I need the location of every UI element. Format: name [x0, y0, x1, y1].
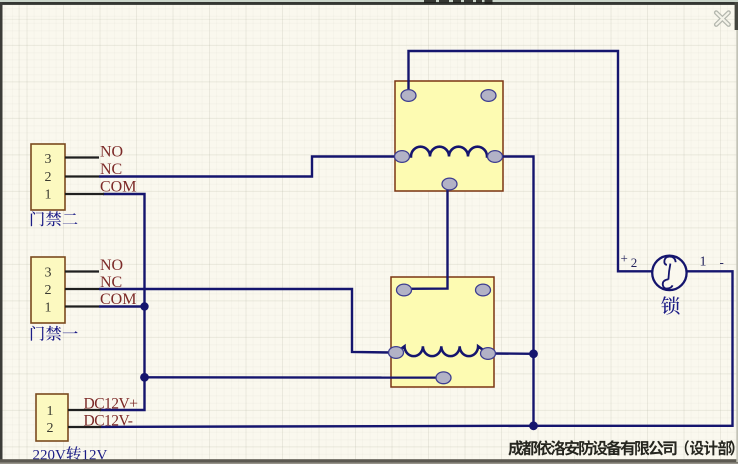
svg-text:NC: NC — [100, 161, 122, 178]
svg-text:DC12V+: DC12V+ — [84, 396, 138, 413]
svg-text:NO: NO — [100, 144, 123, 161]
svg-text:2: 2 — [45, 283, 52, 298]
svg-text:2: 2 — [631, 255, 638, 270]
svg-text:NC: NC — [100, 274, 122, 291]
svg-text:COM: COM — [100, 291, 136, 308]
svg-text:DC12V-: DC12V- — [84, 413, 133, 430]
svg-text:+: + — [621, 251, 628, 266]
svg-text:2: 2 — [45, 170, 52, 185]
svg-text:1: 1 — [45, 301, 52, 316]
svg-text:2: 2 — [47, 421, 54, 436]
svg-text:3: 3 — [45, 152, 52, 167]
svg-text:1: 1 — [45, 188, 52, 203]
svg-text:COM: COM — [100, 179, 136, 196]
svg-text:3: 3 — [45, 266, 52, 281]
svg-text:NO: NO — [100, 257, 123, 274]
svg-text:1: 1 — [47, 404, 54, 419]
svg-text:-: - — [720, 255, 724, 270]
svg-text:1: 1 — [700, 255, 707, 270]
